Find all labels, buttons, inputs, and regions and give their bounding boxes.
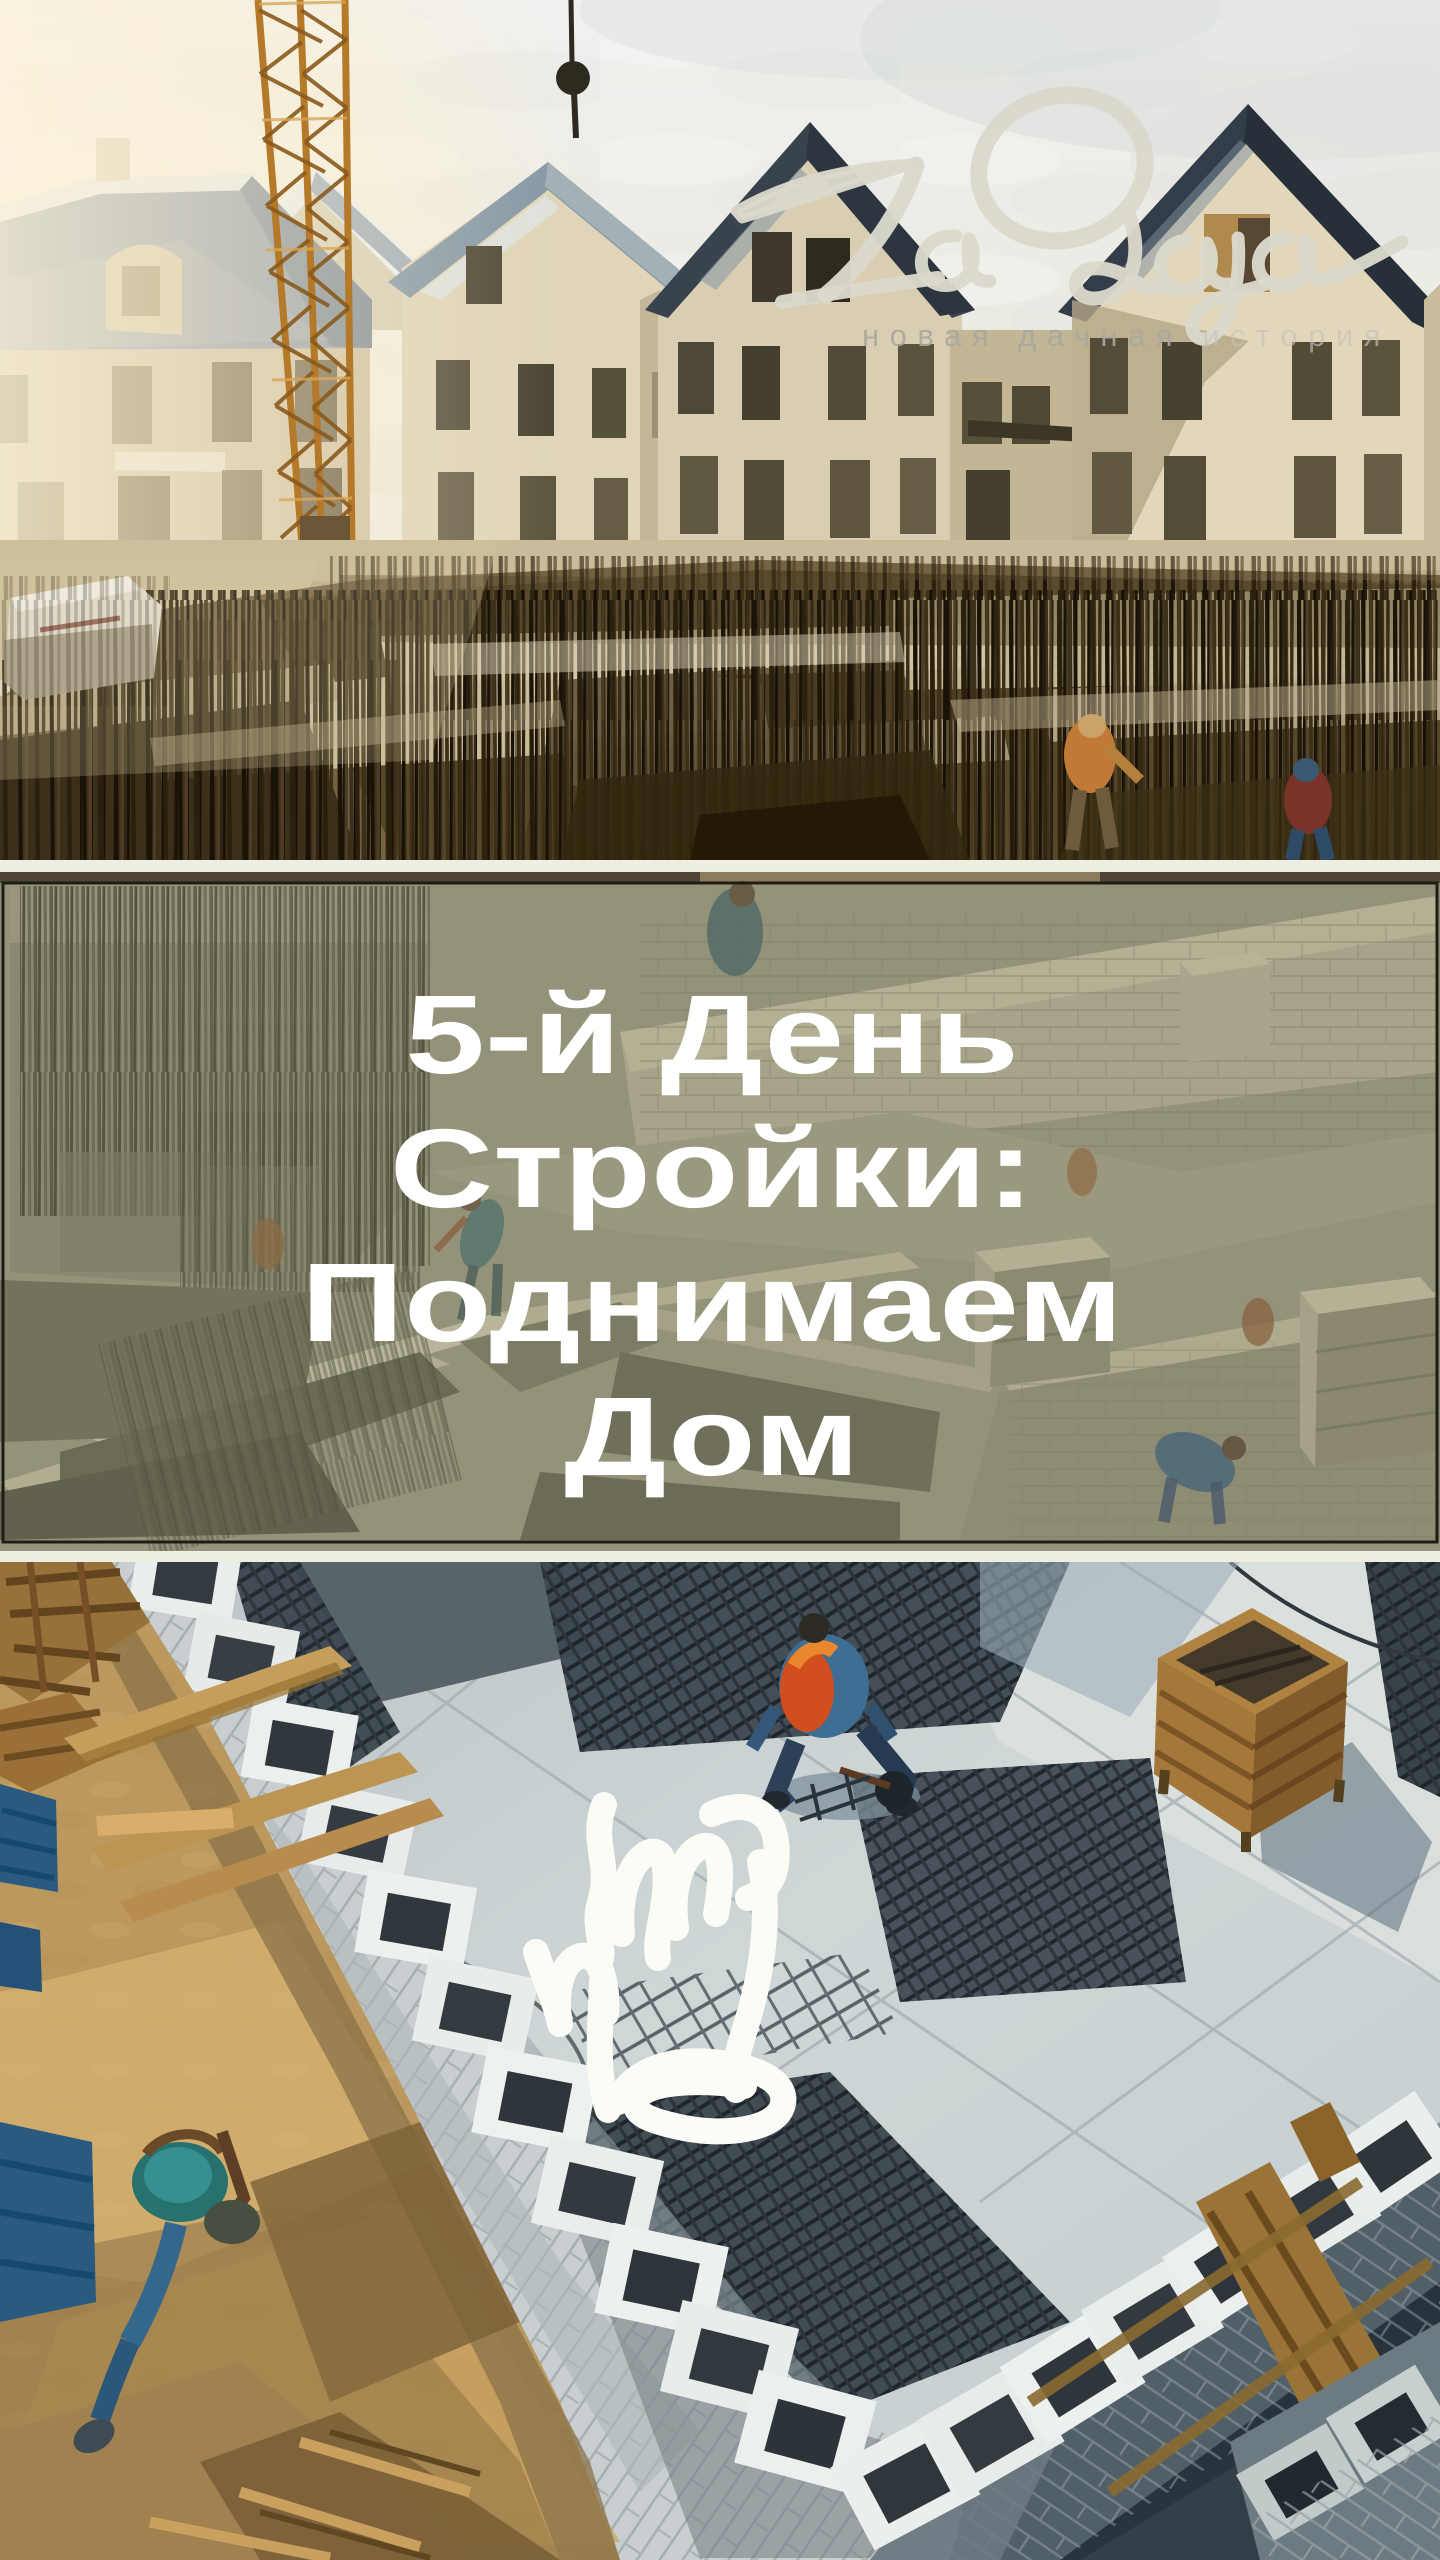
svg-text:новая дачная история: новая дачная история (862, 318, 1391, 353)
